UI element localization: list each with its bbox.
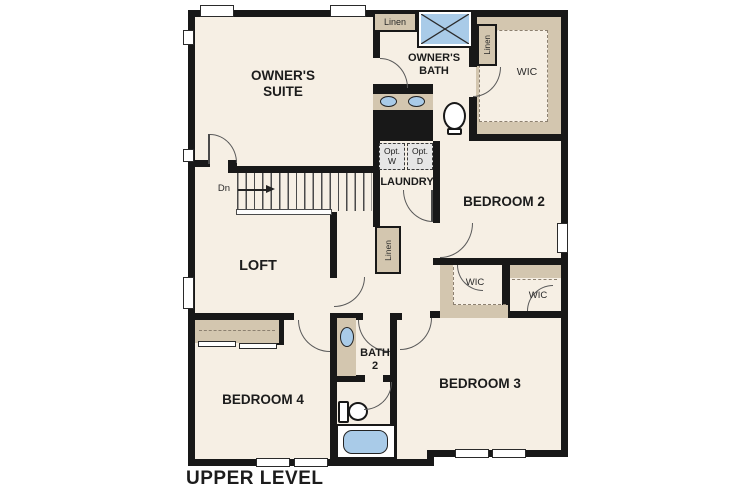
room-label-owners-suite: OWNER'S SUITE: [244, 68, 322, 100]
window: [557, 223, 568, 253]
closet-shelf: [440, 305, 508, 318]
opt-dryer-line2: D: [417, 157, 423, 167]
toilet: [443, 102, 466, 130]
room-label-bath2: BATH 2: [356, 347, 394, 373]
optional-dryer-box: Opt. D: [407, 143, 433, 170]
stairs-direction-arrow: [238, 189, 268, 191]
room-label-bedroom3-wic: WIC: [518, 290, 558, 301]
optional-washer-box: Opt. W: [379, 143, 405, 170]
linen-closet-label: Linen: [483, 35, 492, 55]
window: [183, 149, 194, 162]
sink: [380, 96, 397, 107]
linen-closet-hall: Linen: [375, 226, 401, 274]
stairs: [237, 173, 372, 211]
closet-shelf: [510, 265, 561, 278]
sliding-door: [198, 341, 236, 347]
room-label-bedroom2: BEDROOM 2: [444, 194, 564, 210]
wall: [383, 375, 397, 382]
window: [183, 30, 194, 45]
wall: [469, 134, 568, 141]
window: [492, 449, 526, 458]
stair-railing: [236, 209, 332, 215]
wall: [433, 258, 568, 265]
room-label-laundry: LAUNDRY: [377, 176, 437, 189]
room-label-owners-wic: WIC: [507, 66, 547, 79]
linen-closet-label: Linen: [384, 17, 406, 27]
wall: [330, 212, 337, 278]
linen-closet-wic: Linen: [477, 24, 497, 66]
sliding-door: [239, 343, 277, 349]
stairs-direction-label: Dn: [214, 183, 234, 194]
sink: [408, 96, 425, 107]
window: [455, 449, 489, 458]
wall: [373, 110, 433, 141]
toilet-tank: [447, 128, 462, 135]
room-label-bedroom2-wic: WIC: [455, 277, 495, 288]
bathtub: [343, 430, 388, 454]
closet-rod-line: [199, 330, 275, 331]
window: [183, 277, 194, 309]
sink: [340, 327, 354, 347]
linen-closet-bath: Linen: [373, 12, 417, 32]
opt-washer-line2: W: [388, 157, 396, 167]
room-label-bedroom4: BEDROOM 4: [203, 392, 323, 408]
stairs-arrowhead: [266, 185, 275, 193]
window: [294, 458, 328, 467]
linen-closet-label: Linen: [383, 240, 393, 261]
closet-shelf-line: [512, 279, 557, 280]
window: [256, 458, 290, 467]
window: [200, 5, 234, 17]
wall: [330, 375, 365, 382]
room-label-bedroom3: BEDROOM 3: [420, 376, 540, 392]
wall: [230, 166, 380, 173]
room-label-owners-bath: OWNER'S BATH: [404, 52, 464, 78]
wall: [427, 450, 434, 466]
bathtub-surround: [336, 424, 396, 459]
wall: [188, 10, 195, 466]
closet-shelf: [195, 320, 279, 343]
room-label-loft: LOFT: [218, 258, 298, 275]
floor-plan: Dn Linen Linen Linen: [0, 0, 750, 500]
shower: [417, 10, 473, 48]
shower-glass-icon: [421, 14, 469, 44]
upper-level-title: UPPER LEVEL: [186, 468, 406, 491]
window: [330, 5, 366, 17]
